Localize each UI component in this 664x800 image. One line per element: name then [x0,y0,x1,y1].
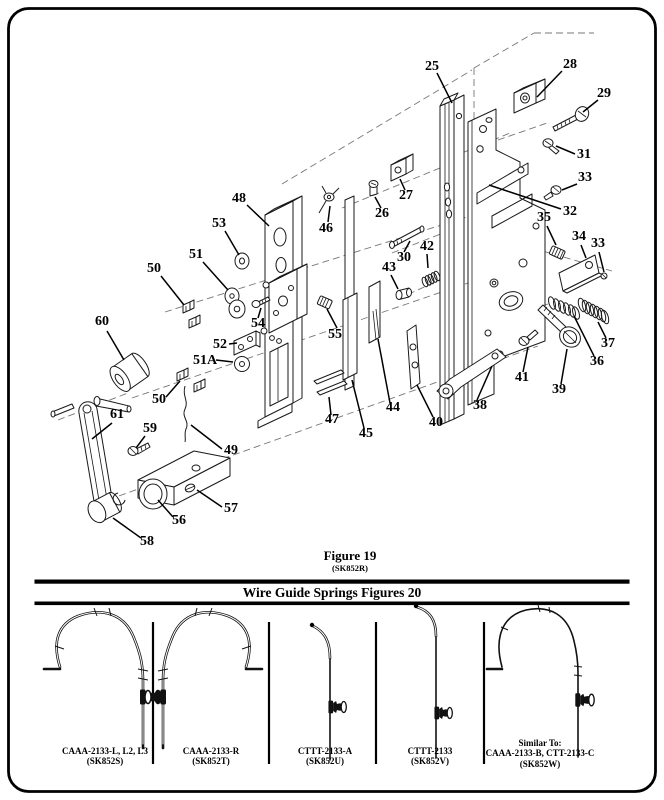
spring-caaa-2133-l [44,608,161,748]
part-40-lever [407,325,420,389]
part-56-block [138,451,230,509]
part-label-51a: 51A [193,353,218,368]
part-58-cap [84,490,125,526]
spring-caaa-2133-r [145,608,262,748]
part-label-58: 58 [140,534,154,549]
header-rule-top [35,580,629,583]
panel4-sku: (SK852V) [411,756,449,766]
part-53-washer [235,253,249,269]
part-label-44: 44 [386,400,400,415]
part-label-32: 32 [563,204,577,219]
part-label-49: 49 [224,443,238,458]
part-33-screw [544,186,561,200]
header-rule-bottom [35,602,629,605]
part-label-28: 28 [563,57,577,72]
part-label-54: 54 [251,316,265,331]
part-47-pins [314,370,347,395]
part-49-wire [184,386,187,442]
panel3-sku: (SK852U) [306,756,344,766]
part-label-27: 27 [399,188,413,203]
part-label-35: 35 [537,210,551,225]
part-29-screw [553,104,591,131]
part-label-45: 45 [359,426,373,441]
part-42-spring [421,270,441,287]
part-34-bar [559,255,603,293]
part-30-pin [390,226,425,249]
part-label-51: 51 [189,247,203,262]
part-label-52: 52 [213,337,227,352]
panel5-label: CAAA-2133-B, CTT-2133-C [486,748,595,758]
part-55-setscrew [317,296,333,310]
figure19-subcaption: (SK852R) [332,563,368,573]
panel1-sku: (SK852S) [87,756,124,766]
figure19-caption: Figure 19 [324,548,377,563]
part-33b-screw [601,273,607,279]
part-48-plate [258,196,307,428]
part-28-block [514,79,545,113]
part-label-50b: 50 [152,392,166,407]
part-label-33: 33 [578,170,592,185]
spring-cttt-2133 [414,604,453,758]
part-label-50: 50 [147,261,161,276]
part-label-31: 31 [577,147,591,162]
part-label-57: 57 [224,501,238,516]
panel3-label: CTTT-2133-A [298,746,353,756]
part-label-33b: 33 [591,236,605,251]
spring-caaa-2133-b [487,605,594,757]
part-label-34: 34 [572,229,586,244]
part-60-roller [106,350,153,395]
part-label-55: 55 [328,327,342,342]
part-label-42: 42 [420,239,434,254]
part-27-block [391,154,413,181]
part-label-53: 53 [212,216,226,231]
part-label-30: 30 [397,250,411,265]
spring-cttt-2133-a [310,623,347,760]
panel-separators [153,622,484,764]
part-label-56: 56 [172,513,186,528]
figure19-drawing: 25 28 29 31 33 32 35 34 33 26 27 30 42 4… [51,33,615,573]
panel1-label: CAAA-2133-L, L2, L3 [62,746,149,756]
part-26-screw [369,181,378,197]
figure20-section: Wire Guide Springs Figures 20 [35,580,629,769]
panel2-sku: (SK852T) [192,756,230,766]
part-label-43: 43 [382,260,396,275]
part-50-clip-a [183,300,194,313]
part-label-60: 60 [95,314,109,329]
part-50b-clip-b [194,379,205,392]
panel5-sku: (SK852W) [520,759,561,769]
panel5-similar-to: Similar To: [518,738,561,748]
part-label-38: 38 [473,398,487,413]
part-label-37: 37 [601,336,615,351]
part-43-sleeve [396,288,412,300]
panel4-label: CTTT-2133 [408,746,453,756]
part-51-washers [225,288,245,318]
part-45-bar [343,196,357,390]
part-44-bar [369,281,380,343]
part-label-29: 29 [597,86,611,101]
figure20-header: Wire Guide Springs Figures 20 [243,585,422,600]
part-label-47: 47 [325,412,339,427]
part-51a-washer [235,357,250,372]
part-label-48: 48 [232,191,246,206]
parts-diagram-svg: 25 28 29 31 33 32 35 34 33 26 27 30 42 4… [0,0,664,800]
part-label-26: 26 [375,206,389,221]
part-label-41: 41 [515,370,529,385]
manual-page: 25 28 29 31 33 32 35 34 33 26 27 30 42 4… [0,0,664,800]
part-label-25: 25 [425,59,439,74]
part-label-46: 46 [319,221,333,236]
part-label-39: 39 [552,382,566,397]
part-label-40: 40 [429,415,443,430]
part-50-clip-b [189,315,200,328]
part-52-plate [234,331,260,355]
part-35-setscrew [549,246,565,260]
part-37-spring [577,297,610,324]
part-label-59: 59 [143,421,157,436]
panel2-label: CAAA-2133-R [183,746,240,756]
part-label-61: 61 [110,407,124,422]
part-label-36: 36 [590,354,604,369]
